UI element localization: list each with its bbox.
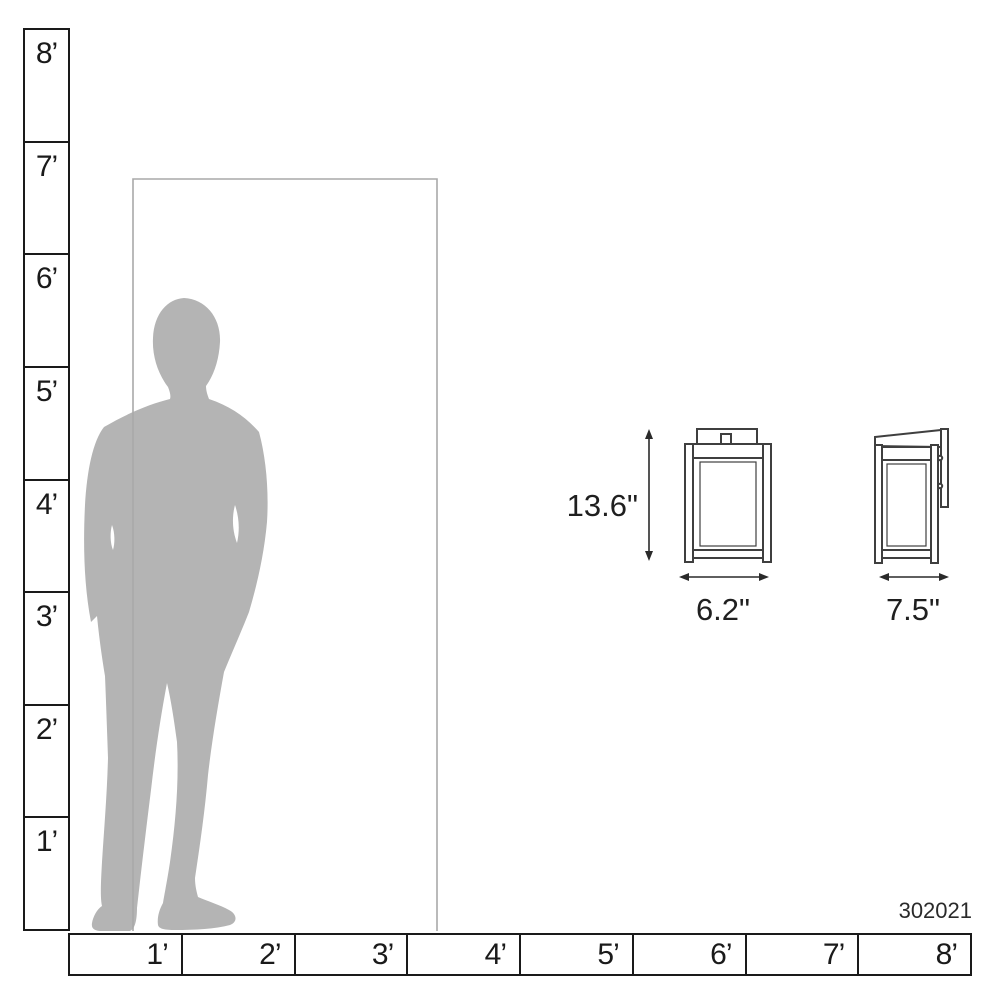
- scale-label: 5’: [521, 935, 632, 974]
- scale-label: 6’: [25, 255, 68, 294]
- scale-label: 1’: [70, 935, 181, 974]
- h-scale-segment-4ft: 4’: [408, 935, 521, 974]
- scale-label: 8’: [25, 30, 68, 69]
- v-scale-segment-7ft: 7’: [25, 143, 68, 256]
- scale-label: 4’: [25, 481, 68, 520]
- scale-label: 4’: [408, 935, 519, 974]
- scale-label: 5’: [25, 368, 68, 407]
- side-width-dimension-label: 7.5": [843, 593, 983, 627]
- h-scale-segment-6ft: 6’: [634, 935, 747, 974]
- scale-label: 7’: [25, 143, 68, 182]
- v-scale-segment-1ft: 1’: [25, 818, 68, 929]
- scale-label: 3’: [25, 593, 68, 632]
- v-scale-segment-2ft: 2’: [25, 706, 68, 819]
- scale-diagram: 8’ 7’ 6’ 5’ 4’ 3’ 2’ 1’ 1’ 2’ 3’ 4’ 5’ 6…: [0, 0, 1000, 1000]
- scale-label: 2’: [25, 706, 68, 745]
- person-silhouette-icon: [84, 298, 268, 931]
- side-width-dimension-arrow-icon: [879, 573, 949, 581]
- v-scale-segment-3ft: 3’: [25, 593, 68, 706]
- height-dimension-label: 13.6": [498, 489, 638, 523]
- h-scale-segment-8ft: 8’: [859, 935, 970, 974]
- h-scale-segment-1ft: 1’: [70, 935, 183, 974]
- scale-label: 6’: [634, 935, 745, 974]
- h-scale-segment-2ft: 2’: [183, 935, 296, 974]
- scale-label: 7’: [747, 935, 858, 974]
- product-code: 302021: [832, 899, 972, 923]
- front-width-dimension-arrow-icon: [679, 573, 769, 581]
- v-scale-segment-4ft: 4’: [25, 481, 68, 594]
- vertical-scale-ruler: 8’ 7’ 6’ 5’ 4’ 3’ 2’ 1’: [23, 28, 70, 931]
- scale-label: 8’: [859, 935, 970, 974]
- v-scale-segment-5ft: 5’: [25, 368, 68, 481]
- scale-label: 2’: [183, 935, 294, 974]
- lantern-front-view-icon: [685, 429, 771, 562]
- h-scale-segment-3ft: 3’: [296, 935, 409, 974]
- lantern-side-view-icon: [875, 429, 948, 563]
- front-width-dimension-label: 6.2": [653, 593, 793, 627]
- v-scale-segment-6ft: 6’: [25, 255, 68, 368]
- scale-label: 3’: [296, 935, 407, 974]
- scale-label: 1’: [25, 818, 68, 857]
- height-dimension-arrow-icon: [645, 429, 653, 561]
- horizontal-scale-ruler: 1’ 2’ 3’ 4’ 5’ 6’ 7’ 8’: [68, 933, 972, 976]
- v-scale-segment-8ft: 8’: [25, 30, 68, 143]
- h-scale-segment-7ft: 7’: [747, 935, 860, 974]
- h-scale-segment-5ft: 5’: [521, 935, 634, 974]
